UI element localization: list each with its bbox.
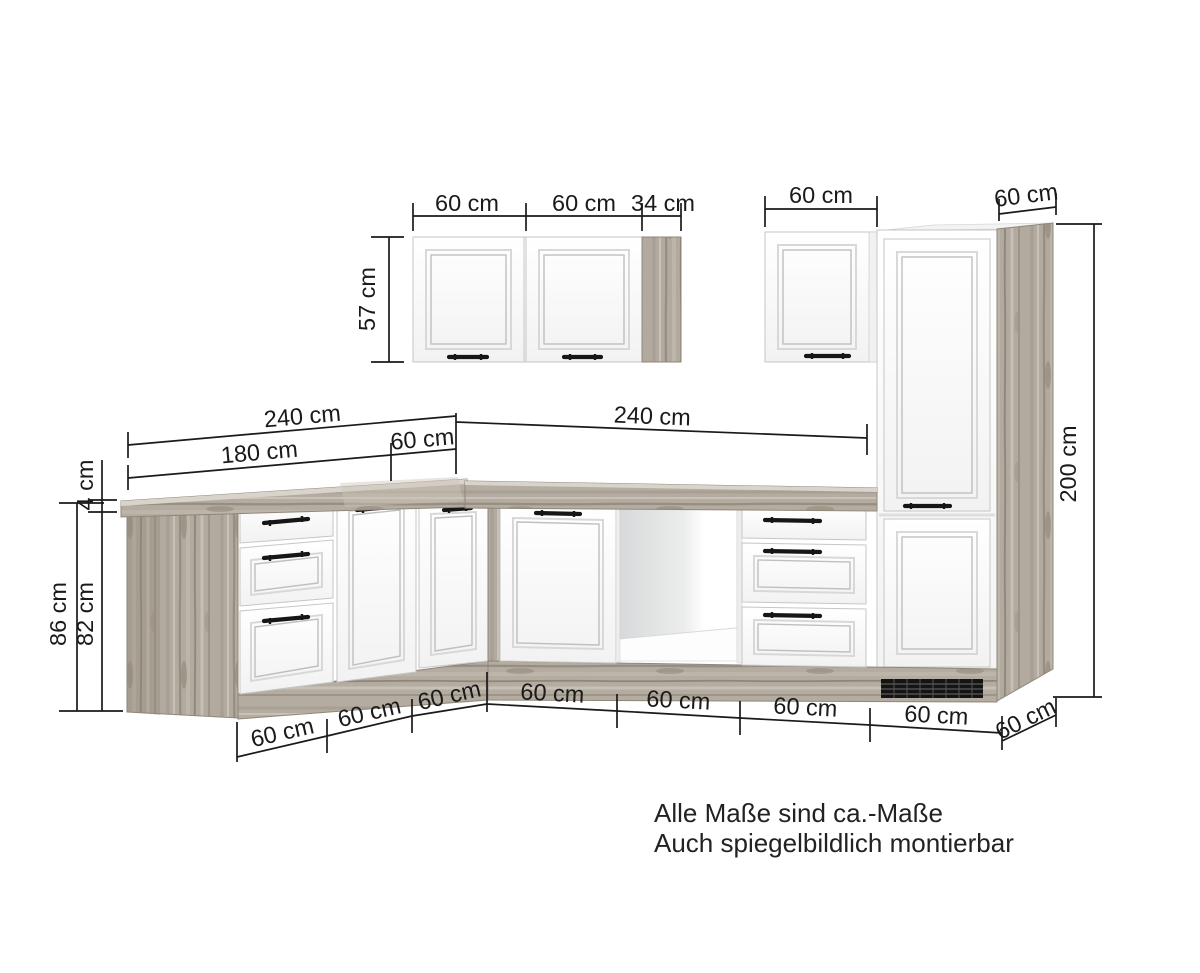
dim-label-wall-right-width: 60 cm	[789, 182, 853, 208]
wall-cabinet-body	[765, 232, 877, 362]
dim-label-wall-left-door2: 60 cm	[552, 190, 616, 216]
kitchen-dimension-diagram: 60 cm 60 cm 34 cm 57 cm 60 cm 60 cm 200 …	[0, 0, 1200, 973]
drawer	[240, 540, 333, 606]
base-corner-door	[419, 498, 488, 668]
corner-wood-block-side-shade	[127, 509, 160, 715]
wall-cabinet-group-left	[413, 237, 681, 362]
footnote-line-2: Auch spiegelbildlich montierbar	[654, 828, 1014, 858]
drawer-handle	[765, 615, 820, 616]
corner-wood-stile	[488, 498, 500, 661]
dim-label-counter-thickness: 4 cm	[72, 460, 98, 511]
dim-label-base-right-4: 60 cm	[904, 700, 969, 729]
dim-label-base-right-1: 60 cm	[520, 678, 585, 707]
wall-door-left-1	[413, 237, 524, 362]
wall-cabinet-group-right	[765, 232, 877, 362]
base-drawer-cabinet-left	[240, 498, 333, 694]
drawer-handle	[765, 551, 820, 552]
vent-grille	[881, 679, 983, 698]
dim-label-tall-depth-bottom: 60 cm	[991, 693, 1060, 744]
drawer-handle	[765, 520, 820, 521]
appliance-niche	[620, 507, 737, 661]
footnotes: Alle Maße sind ca.-Maße Auch spiegelbild…	[654, 798, 1014, 858]
wall-wood-panel-34cm	[642, 237, 681, 362]
footnote-line-1: Alle Maße sind ca.-Maße	[654, 798, 943, 828]
base-drawer-cabinet-right	[742, 508, 866, 667]
dim-label-base-right-3: 60 cm	[773, 692, 838, 721]
tall-lower-door	[884, 519, 990, 667]
tall-cabinet-wood-side	[997, 223, 1053, 701]
dim-label-tall-height: 200 cm	[1055, 425, 1081, 502]
dim-label-base-height-body: 82 cm	[72, 582, 98, 646]
dim-label-base-right-2: 60 cm	[646, 685, 711, 714]
base-door-cabinet-left	[337, 492, 416, 682]
dim-label-right-run-total: 240 cm	[613, 402, 691, 431]
wall-door-left-2	[526, 237, 642, 362]
dim-label-wall-height: 57 cm	[354, 267, 380, 331]
drawer	[742, 508, 866, 540]
tall-cabinet	[877, 223, 1053, 701]
dim-label-tall-depth-top: 60 cm	[993, 178, 1060, 212]
dim-label-base-height-total: 86 cm	[45, 582, 71, 646]
dim-label-wall-left-door1: 60 cm	[435, 190, 499, 216]
countertop-right	[465, 481, 877, 511]
tall-upper-door	[884, 239, 990, 511]
dim-label-wall-left-panel: 34 cm	[631, 190, 695, 216]
dim-label-left-run-corner: 60 cm	[389, 423, 455, 454]
base-sink-door	[500, 505, 616, 663]
